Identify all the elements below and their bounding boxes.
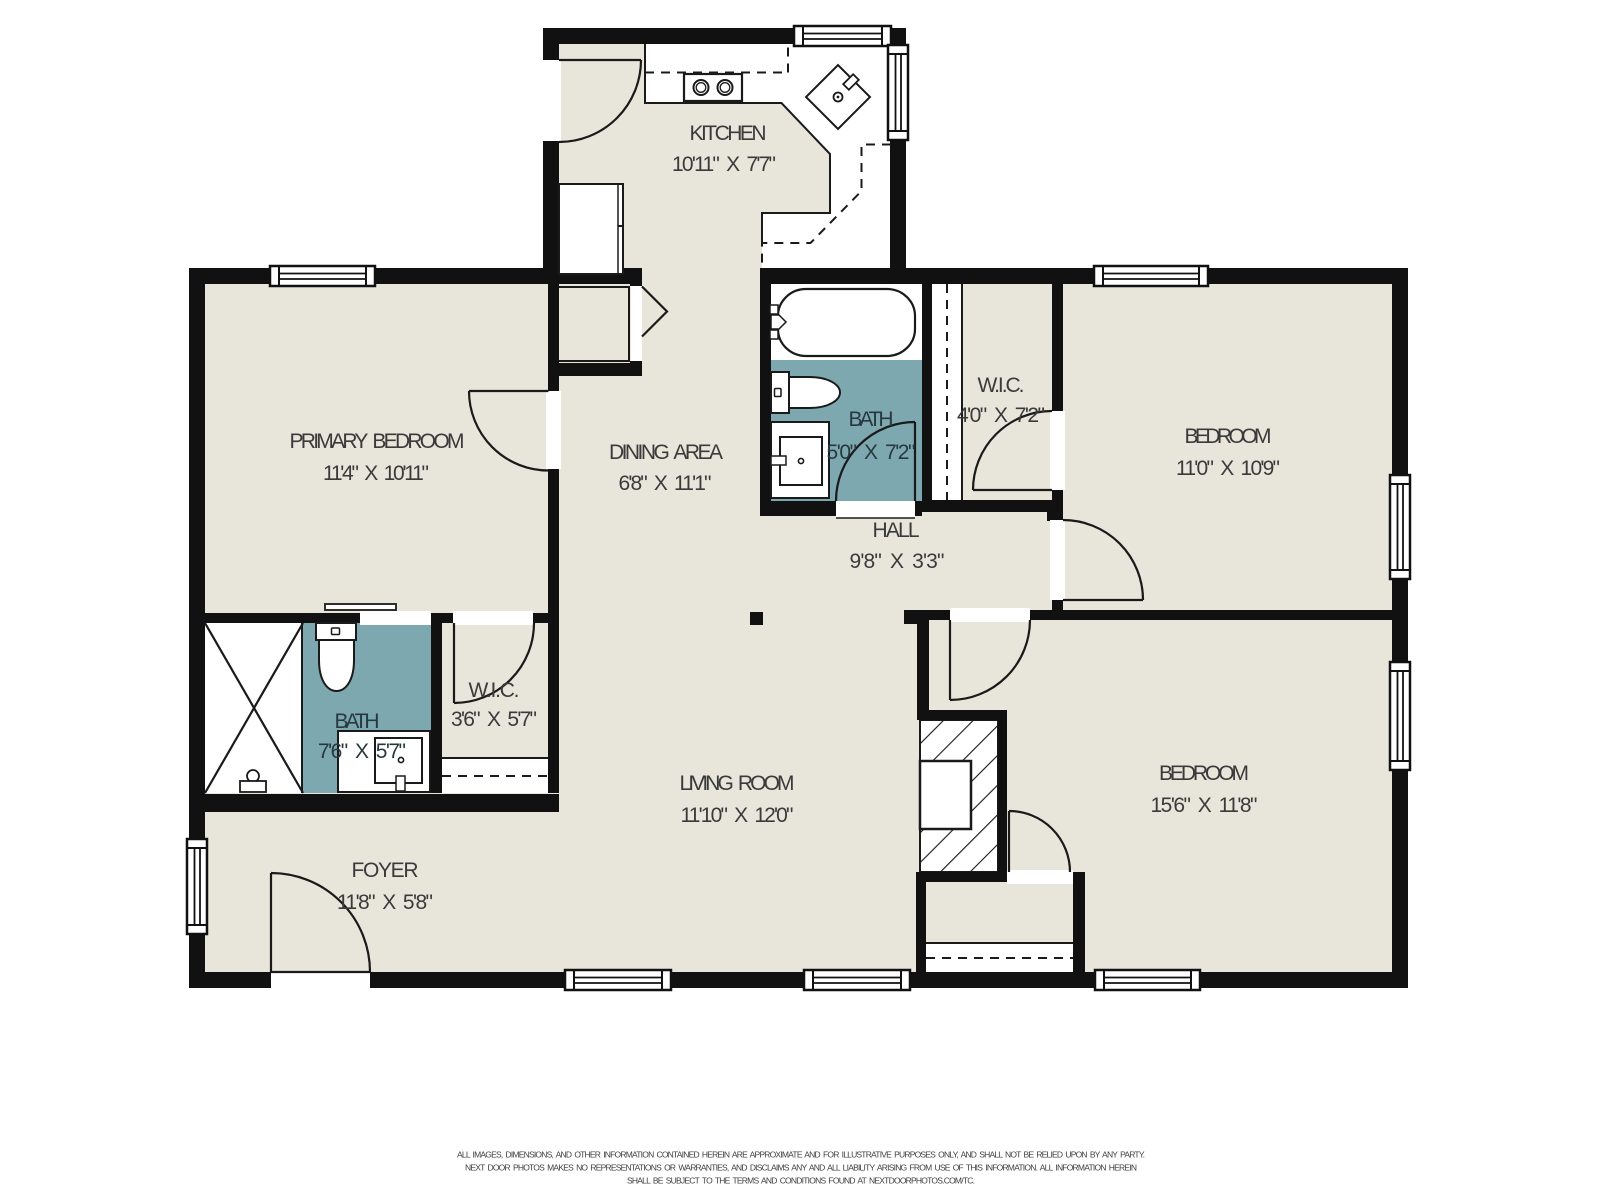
svg-text:W.I.C.: W.I.C. bbox=[978, 374, 1025, 397]
svg-text:ALL IMAGES, DIMENSIONS, AND OT: ALL IMAGES, DIMENSIONS, AND OTHER INFORM… bbox=[457, 1150, 1145, 1160]
svg-text:4'0" X 7'2": 4'0" X 7'2" bbox=[957, 404, 1045, 427]
svg-text:3'6" X 5'7": 3'6" X 5'7" bbox=[451, 708, 537, 731]
svg-text:NEXT DOOR PHOTOS MAKES NO REPR: NEXT DOOR PHOTOS MAKES NO REPRESENTATION… bbox=[465, 1163, 1137, 1173]
svg-text:BEDROOM: BEDROOM bbox=[1185, 425, 1272, 448]
svg-text:6'8" X 11'1": 6'8" X 11'1" bbox=[619, 472, 712, 495]
svg-text:LIVING ROOM: LIVING ROOM bbox=[680, 772, 795, 795]
svg-text:W.I.C.: W.I.C. bbox=[469, 679, 520, 702]
svg-text:5'0" X 7'2": 5'0" X 7'2" bbox=[827, 441, 916, 464]
svg-text:11'4" X 10'11": 11'4" X 10'11" bbox=[323, 462, 429, 485]
svg-text:BATH: BATH bbox=[335, 710, 380, 733]
svg-text:BEDROOM: BEDROOM bbox=[1159, 762, 1249, 785]
svg-text:10'11" X 7'7": 10'11" X 7'7" bbox=[672, 153, 776, 176]
svg-text:9'8" X 3'3": 9'8" X 3'3" bbox=[850, 550, 945, 573]
svg-text:DINING AREA: DINING AREA bbox=[609, 441, 723, 464]
svg-text:7'6" X 5'7": 7'6" X 5'7" bbox=[318, 740, 406, 763]
svg-text:SHALL BE SUBJECT TO THE TERMS: SHALL BE SUBJECT TO THE TERMS AND CONDIT… bbox=[627, 1176, 975, 1186]
svg-text:11'0" X 10'9": 11'0" X 10'9" bbox=[1176, 457, 1280, 480]
svg-text:15'6" X 11'8": 15'6" X 11'8" bbox=[1151, 794, 1258, 817]
svg-text:PRIMARY BEDROOM: PRIMARY BEDROOM bbox=[290, 430, 465, 453]
svg-text:FOYER: FOYER bbox=[352, 859, 419, 882]
svg-text:11'10" X 12'0": 11'10" X 12'0" bbox=[681, 804, 794, 827]
svg-text:HALL: HALL bbox=[873, 519, 920, 542]
svg-text:KITCHEN: KITCHEN bbox=[690, 122, 767, 145]
svg-text:BATH: BATH bbox=[849, 408, 894, 431]
svg-text:11'8" X 5'8": 11'8" X 5'8" bbox=[337, 891, 433, 914]
